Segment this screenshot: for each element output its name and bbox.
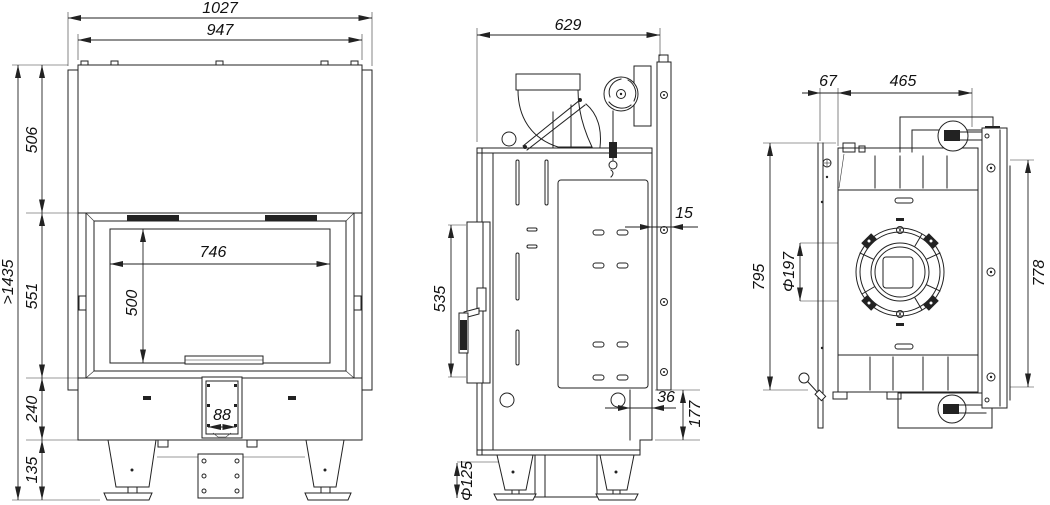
dimension-side-depth: 629 xyxy=(477,17,660,35)
side-ash-box xyxy=(535,455,597,497)
side-port-hole xyxy=(502,132,516,146)
drawing-page: 1027 947 >1435 506 551 240 135 746 xyxy=(0,0,1050,505)
dim-label-front-base-height: 240 xyxy=(24,396,41,424)
dim-label-front-body-width: 947 xyxy=(207,22,235,39)
cable-weight xyxy=(609,142,617,158)
front-right-leg xyxy=(306,440,344,487)
dimension-front-overall-height: >1435 xyxy=(0,65,18,500)
dim-label-front-glass-height: 500 xyxy=(124,290,141,317)
dim-label-side-frame-gap: 15 xyxy=(675,205,693,222)
dim-label-rear-flange-offset: 67 xyxy=(819,73,838,90)
side-rear-foot xyxy=(596,494,638,500)
dim-label-side-rear-offset: 36 xyxy=(657,389,675,406)
front-right-flange xyxy=(362,70,372,390)
dimension-rear-panel-height: 778 xyxy=(1028,160,1048,387)
front-right-foot xyxy=(305,493,351,500)
dim-label-front-overall-width: 1027 xyxy=(202,0,239,17)
rear-mounting-plate xyxy=(982,128,1010,408)
side-legs xyxy=(494,455,638,500)
dim-label-side-depth: 629 xyxy=(555,17,582,34)
side-front-leg xyxy=(497,455,533,490)
flue-elbow xyxy=(502,74,600,150)
front-legs xyxy=(104,440,351,500)
side-door xyxy=(459,222,490,383)
rear-left-flange xyxy=(818,143,823,428)
dim-label-front-hood-height: 506 xyxy=(24,127,41,154)
convection-panel xyxy=(558,180,648,388)
rear-view: 67 465 795 Φ197 778 xyxy=(751,73,1048,428)
dim-label-front-glass-width: 746 xyxy=(200,244,227,261)
dim-label-rear-body-width: 465 xyxy=(890,73,917,90)
dimension-front-overall-width: 1027 xyxy=(68,0,372,18)
front-left-leg xyxy=(108,440,156,487)
dimension-front-leg-height: 135 xyxy=(24,440,42,500)
vent-grille-right xyxy=(265,215,317,221)
dimension-rear-frame-height: 795 xyxy=(751,143,770,390)
side-hole-rear xyxy=(611,393,625,407)
dim-label-front-overall-height: >1435 xyxy=(0,259,17,304)
drawing-canvas: 1027 947 >1435 506 551 240 135 746 xyxy=(0,0,1050,505)
dim-label-side-air-inlet-diameter: Φ125 xyxy=(459,461,476,501)
flue-collar-rear xyxy=(856,227,944,318)
dimension-front-hood-height: 506 xyxy=(24,65,42,213)
dimension-side-door-height: 535 xyxy=(432,225,451,377)
front-left-foot xyxy=(104,493,152,500)
vent-grille-left xyxy=(127,215,179,221)
dim-label-rear-panel-height: 778 xyxy=(1031,260,1048,287)
dim-label-front-ash-door-width: 88 xyxy=(213,407,231,424)
dimension-rear-body-width: 465 xyxy=(838,73,972,93)
dimension-side-air-inlet-diameter: Φ125 xyxy=(457,461,476,501)
dimension-front-base-height: 240 xyxy=(24,378,42,440)
damper-plate xyxy=(883,257,913,288)
dimension-side-rear-step-height: 177 xyxy=(683,390,704,440)
dimension-rear-flange-offset: 67 xyxy=(802,73,838,96)
side-view: 629 535 15 36 177 Φ125 xyxy=(432,17,704,501)
side-hole-front xyxy=(500,393,514,407)
front-view: 1027 947 >1435 506 551 240 135 746 xyxy=(0,0,372,500)
dim-label-front-leg-height: 135 xyxy=(24,457,41,484)
air-inlet-box xyxy=(198,454,243,498)
dimension-rear-flue-diameter: Φ197 xyxy=(781,243,800,301)
door-latch xyxy=(477,288,486,311)
air-control-key xyxy=(799,373,826,401)
dim-label-rear-flue-diameter: Φ197 xyxy=(781,251,798,292)
dim-label-side-door-height: 535 xyxy=(432,286,449,313)
dimension-front-body-width: 947 xyxy=(78,22,362,40)
dim-label-rear-frame-height: 795 xyxy=(751,264,768,291)
front-left-flange xyxy=(68,70,78,390)
dim-label-front-firebox-height: 551 xyxy=(24,283,41,310)
side-frame-plate xyxy=(657,55,671,390)
flue-collar xyxy=(516,74,580,90)
dim-label-side-rear-step-height: 177 xyxy=(687,400,704,428)
side-front-foot xyxy=(494,494,536,500)
dimension-front-firebox-height: 551 xyxy=(24,213,42,378)
